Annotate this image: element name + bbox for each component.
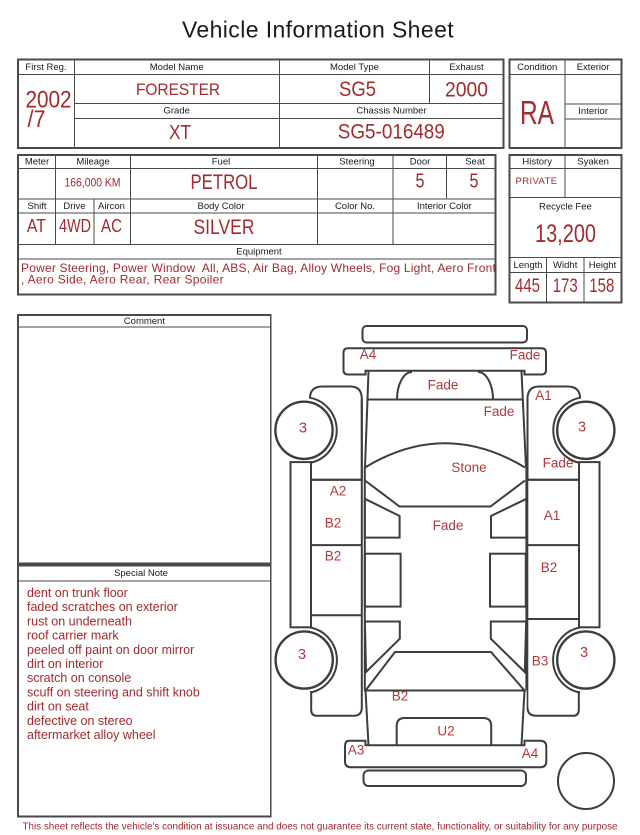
svg-text:Model Type: Model Type <box>330 62 379 73</box>
svg-text:3: 3 <box>578 420 586 436</box>
svg-text:RA: RA <box>520 94 554 131</box>
svg-text:Shift: Shift <box>27 201 46 212</box>
svg-text:First Reg.: First Reg. <box>25 62 66 73</box>
svg-text:SG5: SG5 <box>339 78 376 101</box>
svg-text:dirt on interior: dirt on interior <box>27 657 103 671</box>
svg-text:445: 445 <box>515 276 540 297</box>
svg-text:, Aero Side, Aero Rear, Rear S: , Aero Side, Aero Rear, Rear Spoiler <box>21 273 224 287</box>
svg-text:XT: XT <box>169 122 191 144</box>
svg-text:Meter: Meter <box>25 157 49 168</box>
svg-text:B2: B2 <box>541 560 558 575</box>
svg-text:Vehicle Information Sheet: Vehicle Information Sheet <box>182 17 454 43</box>
svg-text:PETROL: PETROL <box>191 171 258 194</box>
svg-text:History: History <box>522 157 552 168</box>
svg-text:AC: AC <box>101 216 122 236</box>
svg-text:Seat: Seat <box>465 157 485 168</box>
svg-text:Drive: Drive <box>63 201 85 212</box>
svg-text:166,000 KM: 166,000 KM <box>65 178 121 190</box>
svg-text:Fade: Fade <box>510 348 541 363</box>
svg-text:Grade: Grade <box>163 106 189 117</box>
svg-text:158: 158 <box>589 276 614 297</box>
svg-text:SILVER: SILVER <box>194 216 255 239</box>
svg-text:scuff on steering and shift kn: scuff on steering and shift knob <box>27 685 200 699</box>
svg-text:dent on trunk floor: dent on trunk floor <box>27 586 128 600</box>
svg-text:3: 3 <box>299 421 307 437</box>
svg-text:defective on stereo: defective on stereo <box>27 714 133 728</box>
svg-text:Fuel: Fuel <box>212 157 230 168</box>
svg-text:FORESTER: FORESTER <box>136 81 220 99</box>
svg-text:13,200: 13,200 <box>535 220 596 248</box>
svg-text:Chassis Number: Chassis Number <box>356 106 426 117</box>
svg-text:rust on underneath: rust on underneath <box>27 614 132 628</box>
svg-text:Fade: Fade <box>484 404 515 419</box>
svg-text:This sheet reflects the vehicl: This sheet reflects the vehicle's condit… <box>22 822 618 833</box>
svg-text:5: 5 <box>470 171 479 193</box>
svg-text:scratch on console: scratch on console <box>27 671 131 685</box>
svg-text:Widht: Widht <box>553 260 578 271</box>
svg-text:SG5-016489: SG5-016489 <box>338 121 445 144</box>
svg-text:Syaken: Syaken <box>577 157 609 168</box>
svg-text:B3: B3 <box>532 654 549 669</box>
svg-text:A4: A4 <box>522 746 539 761</box>
svg-text:2000: 2000 <box>445 78 488 102</box>
svg-text:PRIVATE: PRIVATE <box>515 176 557 187</box>
svg-text:Height: Height <box>589 260 617 271</box>
svg-text:A1: A1 <box>535 388 552 403</box>
svg-text:dirt on seat: dirt on seat <box>27 700 89 714</box>
svg-text:Interior: Interior <box>578 106 608 117</box>
svg-text:Exhaust: Exhaust <box>449 62 484 73</box>
svg-text:Mileage: Mileage <box>76 157 109 168</box>
svg-text:173: 173 <box>553 276 578 297</box>
svg-text:Stone: Stone <box>451 460 486 475</box>
svg-text:Fade: Fade <box>433 518 464 533</box>
svg-text:AT: AT <box>27 216 46 236</box>
svg-text:Fade: Fade <box>543 456 574 471</box>
svg-text:Color No.: Color No. <box>335 201 375 212</box>
svg-text:Fade: Fade <box>428 378 459 393</box>
svg-text:Special Note: Special Note <box>114 568 168 579</box>
svg-text:3: 3 <box>298 647 306 663</box>
svg-text:Length: Length <box>513 260 542 271</box>
svg-text:B2: B2 <box>325 549 342 564</box>
svg-text:Comment: Comment <box>124 316 166 327</box>
svg-text:Model Name: Model Name <box>150 62 204 73</box>
svg-text:3: 3 <box>580 645 588 661</box>
svg-text:A1: A1 <box>544 508 561 523</box>
svg-text:B2: B2 <box>325 516 342 531</box>
svg-text:aftermarket alloy wheel: aftermarket alloy wheel <box>27 728 156 742</box>
svg-text:U2: U2 <box>437 724 454 739</box>
svg-text:A3: A3 <box>348 743 365 758</box>
svg-text:5: 5 <box>416 171 425 193</box>
svg-text:faded scratches on exterior: faded scratches on exterior <box>27 600 178 614</box>
svg-text:A2: A2 <box>330 484 347 499</box>
svg-text:/7: /7 <box>28 106 46 133</box>
svg-text:Aircon: Aircon <box>98 201 125 212</box>
svg-text:Equipment: Equipment <box>236 247 282 258</box>
svg-text:Door: Door <box>410 157 431 168</box>
svg-text:Interior Color: Interior Color <box>417 201 472 212</box>
svg-text:Recycle Fee: Recycle Fee <box>539 202 592 213</box>
svg-text:Body Color: Body Color <box>198 201 245 212</box>
svg-text:A4: A4 <box>360 347 377 362</box>
svg-text:roof carrier mark: roof carrier mark <box>27 629 119 643</box>
svg-text:peeled off paint on door mirro: peeled off paint on door mirror <box>27 643 194 657</box>
svg-text:Condition: Condition <box>517 62 557 73</box>
svg-text:B2: B2 <box>392 689 409 704</box>
svg-text:Exterior: Exterior <box>577 62 610 73</box>
svg-text:4WD: 4WD <box>59 216 91 236</box>
svg-text:Steering: Steering <box>339 157 374 168</box>
